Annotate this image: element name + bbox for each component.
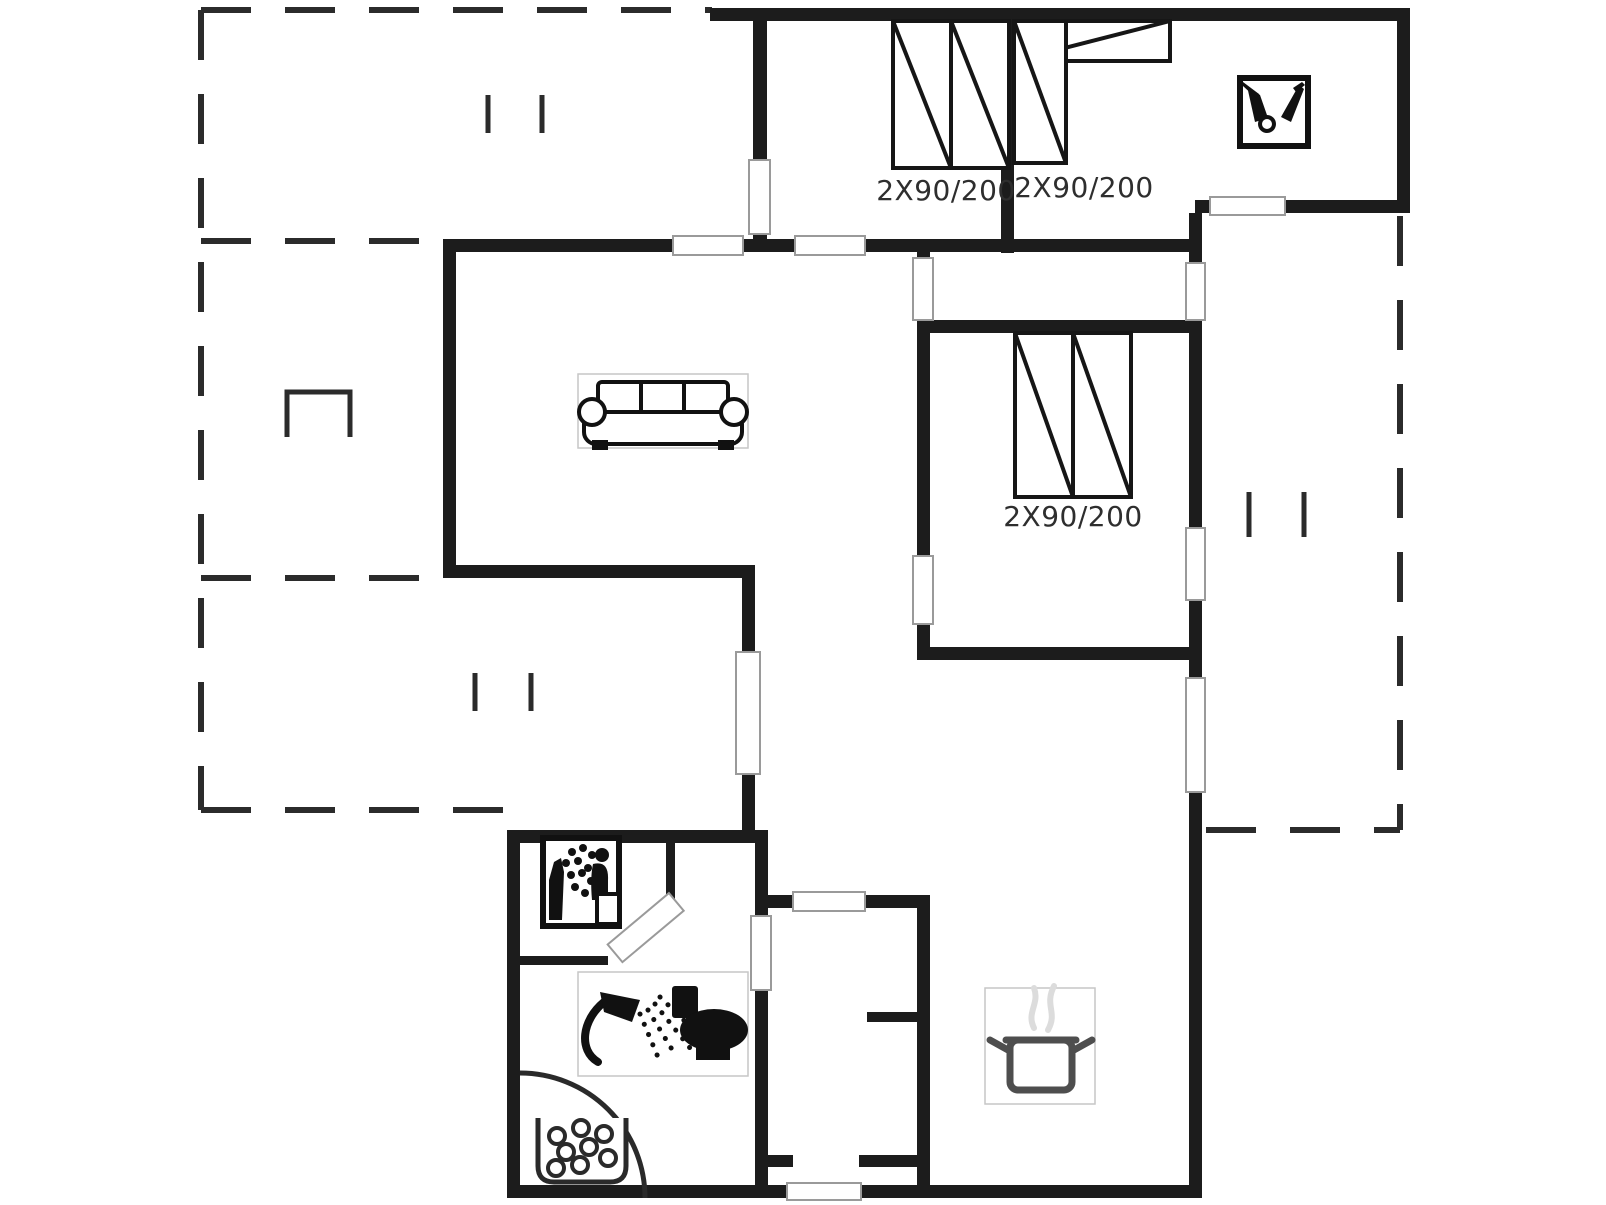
sofa-icon bbox=[578, 374, 748, 448]
wall-right-seg2 bbox=[1189, 318, 1202, 530]
door-entrance bbox=[787, 1183, 861, 1200]
bed-label-top-left: 2X90/200 bbox=[876, 174, 1016, 207]
wall-bathroom-right bbox=[755, 843, 768, 1185]
window-right-1 bbox=[1186, 263, 1205, 320]
window-topright-room bbox=[1210, 197, 1285, 215]
window-west-upper bbox=[749, 160, 770, 234]
door-terrace-north bbox=[673, 236, 743, 255]
wall-living-west bbox=[443, 252, 456, 578]
floor-plan-svg: 2X90/200 2X90/200 2X90/200 bbox=[0, 0, 1606, 1205]
wall-bathroom-left bbox=[507, 843, 520, 1198]
wall-living-south bbox=[443, 565, 755, 578]
floor-plan: 2X90/200 2X90/200 2X90/200 bbox=[0, 0, 1606, 1205]
wall-hall-stub bbox=[867, 1012, 917, 1022]
wall-right-seg4 bbox=[1189, 790, 1202, 1198]
window-right-3 bbox=[1186, 678, 1205, 792]
beds bbox=[893, 21, 1170, 497]
terrace-dashed-lines bbox=[201, 10, 1400, 830]
wall-vestibule-left-stub bbox=[755, 1155, 793, 1167]
grill-icon bbox=[287, 392, 350, 437]
bed-label-middle: 2X90/200 bbox=[1003, 500, 1143, 533]
bathroom-fixtures bbox=[578, 972, 748, 1076]
garden-tools-icon bbox=[1240, 78, 1308, 146]
door-bathroom bbox=[751, 916, 771, 990]
whirlpool-icon bbox=[538, 1118, 626, 1182]
wall-right-seg1 bbox=[1189, 213, 1202, 265]
door-bedroom-top-left bbox=[795, 236, 865, 255]
wall-sauna-horizontal bbox=[520, 956, 608, 965]
sauna-icon bbox=[543, 838, 619, 926]
door-terrace-west bbox=[736, 652, 760, 774]
corner-bed-top-right bbox=[1014, 21, 1170, 163]
wall-vestibule-right-stub bbox=[859, 1155, 930, 1167]
door-corridor bbox=[913, 258, 933, 320]
window-right-2 bbox=[1186, 528, 1205, 600]
door-hall bbox=[793, 892, 865, 911]
wall-hall-east bbox=[917, 895, 930, 1185]
double-bed-top-left bbox=[893, 21, 1009, 168]
wall-topright-room-right bbox=[1397, 8, 1410, 213]
bed-label-top-right: 2X90/200 bbox=[1014, 171, 1154, 204]
double-bed-middle bbox=[1015, 333, 1131, 497]
wall-bedroom-middle-bottom bbox=[917, 647, 1202, 660]
wall-right-seg3 bbox=[1189, 598, 1202, 680]
door-bedroom-middle bbox=[913, 556, 933, 624]
cooking-pot-icon bbox=[985, 986, 1095, 1104]
